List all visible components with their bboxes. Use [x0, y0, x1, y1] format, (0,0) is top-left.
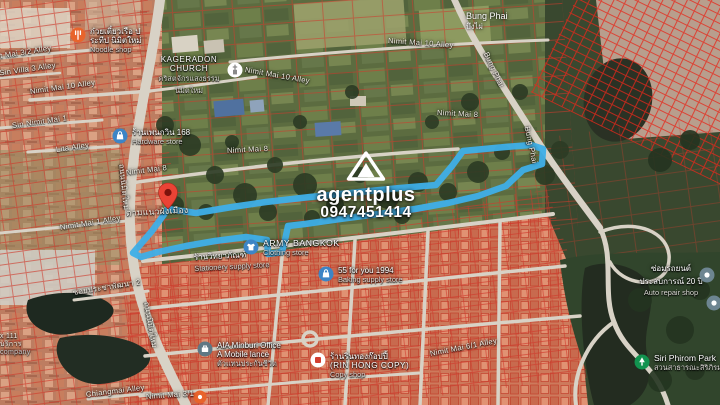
poi-name: (RIN HONG COPY) [330, 361, 409, 370]
watermark-phone: 0947451414 [303, 205, 429, 220]
poi-name: ร้านรินทองก๊อปปี้ [330, 352, 409, 361]
store-icon[interactable] [318, 266, 334, 282]
poi-aia-office[interactable]: AIA Minburi Office A Mobile lance ตัวแทน… [197, 341, 281, 368]
store-icon[interactable] [112, 128, 128, 144]
edge-partial-label: x 111 บริการ company [0, 333, 31, 357]
poi-category: Auto repair shop [626, 288, 716, 297]
poi-thai-name: นิมิตใหม่ [142, 85, 236, 97]
poi-name: A Mobile lance [217, 350, 281, 359]
poi-noodle-shop[interactable]: ก๋วยเตี๋ยวเรือ ป ระทีป นิมิตใหม่ Noodle … [70, 27, 142, 54]
store-icon[interactable] [243, 239, 259, 255]
poi-hardware-store[interactable]: ร้านเพนกวิน 168 Hardware store [112, 128, 190, 146]
locality-name-th: บึงไผ่ [466, 21, 508, 33]
satellite-map[interactable]: ก๋วยเตี๋ยวเรือ ป ระทีป นิมิตใหม่ Noodle … [0, 0, 720, 405]
poi-name: ก๋วยเตี๋ยวเรือ ป [90, 27, 142, 36]
poi-category: Copy shop [330, 370, 409, 379]
poi-name: 55 for you 1994 [338, 266, 403, 275]
poi-thai-name: สวนสาธารณะสิริภิรมย์ [654, 363, 720, 372]
briefcase-icon[interactable] [197, 341, 213, 357]
poi-category: Noodle shop [90, 45, 142, 54]
poi-category: Hardware store [132, 137, 190, 146]
poi-name: ARMY BANGKOK [263, 239, 340, 248]
restaurant-icon[interactable] [70, 27, 86, 43]
copy-shop-icon[interactable] [310, 352, 326, 368]
poi-name: ร้านเพนกวิน 168 [132, 128, 190, 137]
locality-label-bung-phai: Bung Phai บึงไผ่ [466, 11, 508, 33]
poi-name: ระทีป นิมิตใหม่ [90, 36, 142, 45]
poi-clothing-store[interactable]: ARMY BANGKOK Clothing store [243, 239, 340, 257]
poi-copy-shop[interactable]: ร้านรินทองก๊อปปี้ (RIN HONG COPY) Copy s… [310, 352, 409, 379]
partial-line: x 111 [0, 333, 31, 341]
agentplus-logo-icon [344, 151, 388, 181]
church-icon[interactable] [227, 62, 243, 78]
poi-church[interactable]: KAGERADON CHURCH คริสตจักรแสงธรรม นิมิตใ… [142, 55, 236, 97]
restaurant-icon[interactable] [193, 390, 207, 404]
auto-repair-icon[interactable] [699, 267, 715, 283]
agentplus-watermark: agentplus 0947451414 [303, 151, 429, 220]
poi-baking-store[interactable]: 55 for you 1994 Baking supply store [318, 266, 403, 284]
partial-line: บริการ [0, 341, 31, 349]
poi-name: Siri Phirom Park [654, 354, 720, 363]
poi-category: Clothing store [263, 248, 340, 257]
poi-thai-name: คริสตจักรแสงธรรม [142, 73, 236, 85]
poi-icon[interactable] [706, 295, 720, 311]
locality-name-en: Bung Phai [466, 11, 508, 21]
poi-category: ตัวแทนประกันชีวิต [217, 359, 281, 368]
park-tree-icon[interactable] [634, 354, 650, 370]
partial-line: company [0, 349, 31, 357]
poi-category: Baking supply store [338, 275, 403, 284]
watermark-brand: agentplus [303, 186, 429, 205]
poi-siri-phirom-park[interactable]: Siri Phirom Park สวนสาธารณะสิริภิรมย์ [634, 354, 720, 372]
poi-name: AIA Minburi Office [217, 341, 281, 350]
poi-name: KAGERADON CHURCH [142, 55, 236, 73]
